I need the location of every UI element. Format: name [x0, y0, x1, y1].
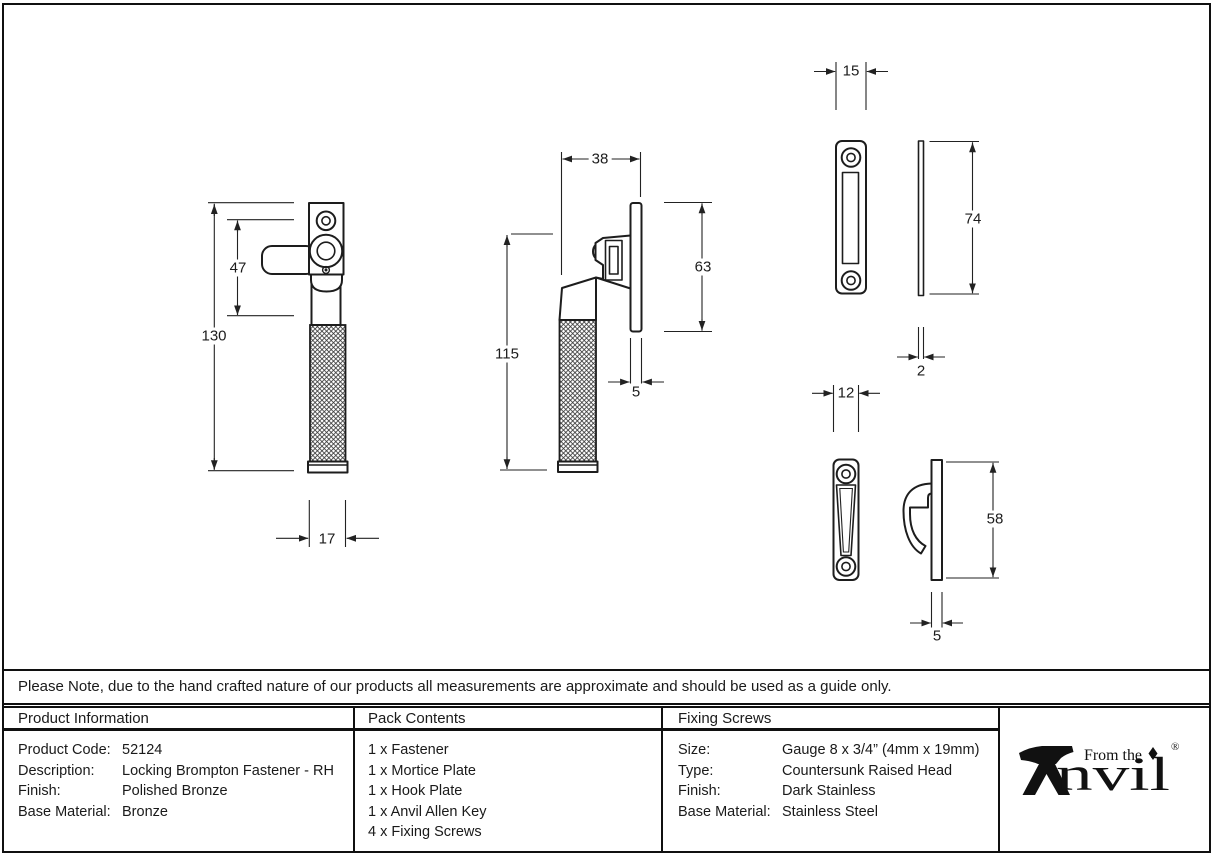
list-item: 1 x Fastener — [368, 740, 653, 761]
table-row: Base Material:Stainless Steel — [678, 802, 993, 823]
table-row: Base Material:Bronze — [18, 802, 348, 823]
technical-drawing: .o { fill:#fff; stroke:#1d1d1d; stroke-w… — [0, 0, 1214, 672]
pack-contents-cell: 1 x Fastener 1 x Mortice Plate 1 x Hook … — [368, 740, 653, 843]
table-row: Size:Gauge 8 x 3/4” (4mm x 19mm) — [678, 740, 993, 761]
fixing-screws-header: Fixing Screws — [678, 710, 771, 727]
table-divider — [661, 706, 663, 853]
dim-hook-height: 58 — [984, 511, 1007, 528]
table-row: Finish:Polished Bronze — [18, 781, 348, 802]
fastener-handle-arm — [262, 246, 316, 274]
pack-contents-header: Pack Contents — [368, 710, 466, 727]
side-end-cap — [558, 462, 598, 473]
table-row: Finish:Dark Stainless — [678, 781, 993, 802]
fastener-front-view — [208, 203, 379, 547]
list-item: 1 x Hook Plate — [368, 781, 653, 802]
table-row: Type:Countersunk Raised Head — [678, 761, 993, 782]
note-box: Please Note, due to the hand crafted nat… — [2, 669, 1211, 705]
dim-side-depth: 38 — [589, 151, 612, 168]
hook-finger — [904, 484, 932, 554]
fastener-knurled-grip — [310, 325, 346, 462]
note-text: Please Note, due to the hand crafted nat… — [18, 678, 892, 695]
side-backplate — [631, 203, 642, 332]
mortice-plate-side — [919, 141, 924, 296]
dim-side-plate-height: 63 — [692, 259, 715, 276]
table-row: Product Code:52124 — [18, 740, 348, 761]
hook-plate-side — [932, 460, 943, 580]
fastener-end-cap — [308, 462, 348, 473]
dim-hook-thickness: 5 — [930, 628, 944, 645]
dim-side-height: 115 — [492, 346, 522, 363]
dim-mortice-width: 15 — [840, 63, 863, 80]
dim-mortice-thickness: 2 — [914, 363, 928, 380]
dim-front-handle-offset: 47 — [227, 260, 250, 277]
dim-hook-width: 12 — [835, 385, 858, 402]
product-information-cell: Product Code:52124 Description:Locking B… — [18, 740, 348, 822]
list-item: 1 x Mortice Plate — [368, 761, 653, 782]
table-divider — [998, 706, 1000, 853]
fastener-side-view — [500, 152, 712, 472]
table-divider — [353, 706, 355, 853]
list-item: 4 x Fixing Screws — [368, 822, 653, 843]
side-knurled-grip — [560, 320, 597, 462]
dim-front-grip-width: 17 — [316, 531, 339, 548]
dim-front-height: 130 — [198, 328, 229, 345]
mortice-slot — [843, 173, 859, 264]
table-row: Description:Locking Brompton Fastener - … — [18, 761, 348, 782]
hook-plate-views — [812, 385, 999, 628]
dim-mortice-height: 74 — [962, 211, 985, 228]
logo-wordmark: nvil — [1056, 748, 1170, 798]
spec-sheet-page: .o { fill:#fff; stroke:#1d1d1d; stroke-w… — [0, 0, 1214, 860]
mortice-plate-views — [814, 62, 979, 359]
dim-side-plate-thickness: 5 — [629, 384, 643, 401]
side-neck — [560, 278, 597, 321]
product-information-header: Product Information — [18, 710, 149, 727]
from-the-anvil-logo: From the nvil ® — [1018, 738, 1190, 798]
fastener-cam — [311, 275, 342, 292]
registered-mark: ® — [1171, 741, 1179, 753]
table-header-underline — [2, 728, 999, 731]
fixing-screws-cell: Size:Gauge 8 x 3/4” (4mm x 19mm) Type:Co… — [678, 740, 993, 822]
table-top-border — [2, 706, 1211, 708]
list-item: 1 x Anvil Allen Key — [368, 802, 653, 823]
